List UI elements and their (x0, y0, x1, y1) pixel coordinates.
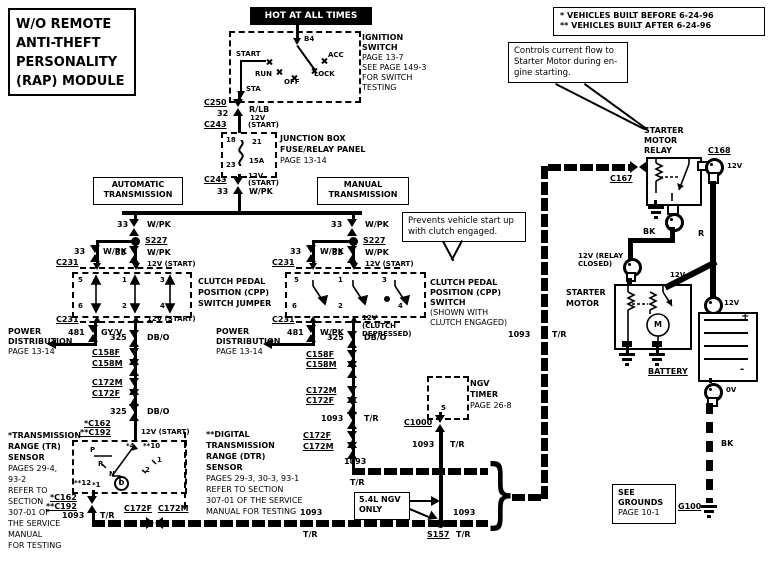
build-note-line2: ** VEHICLES BUILT AFTER 6-24-96 (560, 21, 714, 31)
contact-acc (321, 57, 328, 64)
connector-c172m: C172M (303, 443, 334, 451)
voltage-0v: 0V (726, 387, 736, 394)
circuit-1093: 1093 (62, 512, 84, 520)
color-wpk: W/PK (365, 249, 389, 257)
wire-start-drop (240, 60, 242, 91)
circuit-1093: 1093 (412, 441, 434, 449)
connector-c162: *C162 (50, 494, 77, 502)
tr-pos-1: 1 (157, 457, 162, 464)
color-tr: T/R (364, 415, 379, 423)
color-tr: T/R (450, 441, 465, 449)
pin-3: 3 (160, 277, 165, 284)
battery-label: BATTERY (648, 368, 688, 376)
dtr-note-line: REFER TO SECTION (206, 484, 303, 495)
ngv-timer-note: NGV TIMER PAGE 26-8 (470, 378, 512, 411)
pos-off: OFF (284, 79, 300, 86)
color-rlb: R/LB (249, 106, 269, 114)
starter-ground-stub (656, 346, 659, 353)
connector-c172f: C172F (306, 397, 334, 405)
pos-sta: STA (246, 86, 261, 93)
color-wpk: W/PK (365, 221, 389, 229)
ignition-note-line: SEE PAGE 149-3 (362, 63, 426, 73)
wire-ignition-feed (296, 25, 299, 38)
wire-to-jb (238, 116, 241, 133)
pin-3: 3 (382, 277, 387, 284)
cpp-switch-line: POSITION (CPP) (430, 288, 507, 298)
connector-face-line (80, 267, 172, 269)
splice-s227-label: S227 (145, 237, 167, 245)
color-tr: T/R (456, 531, 471, 539)
jb-note-line: JUNCTION BOX (280, 133, 365, 144)
circuit-33: 33 (117, 221, 128, 229)
jb-note: JUNCTION BOX FUSE/RELAY PANEL PAGE 13-14 (280, 133, 365, 166)
connector-c192: **C192 (46, 503, 77, 511)
dtr-bracket (184, 432, 188, 508)
wire-bus-33 (122, 211, 362, 215)
wire-mid-branch (312, 240, 352, 243)
automatic-header-box: AUTOMATIC TRANSMISSION (93, 177, 183, 205)
tr-note-line: MANUAL (8, 529, 81, 540)
cpp-jumper-note: CLUTCH PEDAL POSITION (CPP) SWITCH JUMPE… (198, 276, 271, 309)
clutch-callout-line: with clutch engaged. (408, 227, 520, 238)
ignition-note-line: IGNITION (362, 33, 426, 43)
contact-start (266, 58, 273, 65)
color-dbo: DB/O (147, 334, 169, 342)
circuit-32: 32 (217, 110, 228, 118)
circuit-33: 33 (115, 249, 126, 257)
voltage-12v-start: 12V (START) (147, 316, 196, 323)
connector-symbol (129, 246, 139, 263)
ngv-arrow-line (410, 500, 432, 502)
title-line: (RAP) MODULE (16, 72, 125, 91)
jb-note-line: FUSE/RELAY PANEL (280, 144, 365, 155)
circuit-1093: 1093 (453, 509, 475, 517)
ngv-pin-5: 5 (441, 405, 446, 412)
manual-header-box: MANUAL TRANSMISSION (317, 177, 409, 205)
tr-pin-10: **10 (143, 443, 160, 450)
starter-ground-symbol (619, 353, 635, 366)
voltage-12v: 12V (724, 300, 739, 307)
cable-bk-ground (706, 403, 713, 503)
wire-riser-1093 (541, 166, 548, 501)
fuse-symbol (235, 140, 247, 166)
starter-title: STARTER MOTOR (566, 287, 606, 309)
circuit-1093: 1093 (300, 509, 322, 517)
title-line: PERSONALITY (16, 53, 125, 72)
color-wpk: W/PK (147, 221, 171, 229)
hot-at-all-times-banner: HOT AT ALL TIMES (250, 7, 372, 25)
connector-c158m: C158M (306, 361, 337, 369)
circuit-33: 33 (331, 221, 342, 229)
color-bk: BK (721, 440, 733, 448)
jb-fuse-15a: 15A (249, 158, 264, 165)
pin-1: 1 (122, 277, 127, 284)
dtr-note-line: MANUAL FOR TESTING (206, 506, 303, 517)
power-dist-line: DISTRIBUTION (8, 337, 73, 347)
connector-c168: C168 (708, 147, 731, 155)
ignition-terminal-label: B4 (304, 36, 314, 43)
pin-2: 2 (338, 303, 343, 310)
jb-fuse-21: 21 (252, 139, 262, 146)
relay-title: STARTER MOTOR RELAY (644, 126, 684, 156)
ngv-only-line: ONLY (359, 505, 401, 515)
connector-c172f: C172F (124, 505, 152, 513)
connector-symbol (129, 359, 139, 376)
connector-symbol-inline (146, 517, 163, 529)
circuit-1093: 1093 (344, 458, 366, 466)
splice-s227-label: S227 (363, 237, 385, 245)
grounds-note-line: PAGE 10-1 (618, 508, 663, 518)
cpp-jumper-line: SWITCH JUMPER (198, 298, 271, 309)
pin-5: 5 (294, 277, 299, 284)
connector-symbol (347, 412, 357, 429)
connector-c250: C250 (204, 99, 227, 107)
color-wpk: W/PK (249, 188, 273, 196)
connector-c158f: C158F (306, 351, 334, 359)
wire-merge (512, 494, 544, 501)
ngv-only-box: 5.4L NGV ONLY (354, 492, 410, 520)
grounds-note-line: GROUNDS (618, 498, 663, 508)
dtr-note-line: TRANSMISSION (206, 440, 303, 451)
wire-bus-1093-up (352, 468, 488, 475)
power-dist-line: PAGE 13-14 (8, 347, 73, 357)
clutch-callout: Prevents vehicle start up with clutch en… (402, 212, 526, 242)
relay-closed-note: 12V (RELAY CLOSED) (578, 252, 623, 268)
connector-symbol (347, 219, 357, 236)
color-wpk: W/PK (147, 249, 171, 257)
power-dist-line: DISTRIBUTION (216, 337, 281, 347)
wire-left-branch (96, 240, 134, 243)
cpp-jumper-arrows (72, 272, 188, 314)
connector-c172f: C172F (303, 432, 331, 440)
pin-2: 2 (122, 303, 127, 310)
power-dist-note: POWER DISTRIBUTION PAGE 13-14 (216, 327, 281, 357)
circuit-33: 33 (74, 248, 85, 256)
auto-header-line: TRANSMISSION (94, 190, 182, 200)
color-dbo: DB/O (364, 334, 386, 342)
connector-symbol (129, 219, 139, 236)
tr-note-line: RANGE (TR) (8, 441, 81, 452)
relay-title-line: RELAY (644, 146, 684, 156)
power-dist-line: POWER (8, 327, 73, 337)
starter-ground-stub (626, 346, 629, 353)
connector-c231: C231 (272, 316, 295, 324)
relay-callout-line: gine starting. (514, 68, 622, 79)
color-tr: T/R (552, 331, 567, 339)
pos-lock: LOCK (314, 71, 335, 78)
connector-symbol-c250 (233, 99, 243, 116)
dtr-note-line: SENSOR (206, 462, 303, 473)
wire-start-contact (240, 60, 266, 62)
connector-c243-out: C243 (204, 176, 227, 184)
color-tr: T/R (303, 531, 318, 539)
tr-pos-2: 2 (145, 467, 150, 474)
cpp-jumper-line: POSITION (CPP) (198, 287, 271, 298)
manual-header-line: MANUAL (318, 180, 408, 190)
cpp-switch-line: CLUTCH PEDAL (430, 278, 507, 288)
relay-callout-line: Controls current flow to (514, 46, 622, 57)
title-box: W/O REMOTE ANTI-THEFT PERSONALITY (RAP) … (8, 8, 136, 96)
ngv-note-line: TIMER (470, 389, 512, 400)
starter-motor-m: M (654, 321, 662, 329)
pin-4: 4 (160, 303, 165, 310)
circuit-1093: 1093 (321, 415, 343, 423)
connector-face-line (296, 267, 400, 269)
pin-6: 6 (292, 303, 297, 310)
circuit-33: 33 (332, 249, 343, 257)
pin-5: 5 (78, 277, 83, 284)
build-note-box: * VEHICLES BUILT BEFORE 6-24-96 ** VEHIC… (553, 7, 765, 36)
pin-6: 6 (78, 303, 83, 310)
wire-to-bus (238, 194, 241, 212)
title-line: ANTI-THEFT (16, 34, 125, 53)
tr-note-line: *TRANSMISSION (8, 430, 81, 441)
tr-pin-1: *1 (92, 482, 101, 489)
ground-g100-label: G100 (678, 503, 701, 511)
manual-header-line: TRANSMISSION (318, 190, 408, 200)
callout-pointer-line (451, 240, 463, 260)
connector-symbol (88, 325, 98, 342)
dtr-note-line: PAGES 29-3, 30-3, 93-1 (206, 473, 303, 484)
relay-closed-line: 12V (RELAY (578, 252, 623, 260)
build-note-line1: * VEHICLES BUILT BEFORE 6-24-96 (560, 11, 714, 21)
circuit-325: 325 (110, 408, 127, 416)
cpp-switch-note: CLUTCH PEDAL POSITION (CPP) SWITCH (SHOW… (430, 278, 507, 328)
ignition-note-line: FOR SWITCH (362, 73, 426, 83)
connector-symbol (306, 245, 316, 262)
wire-riser-top (548, 164, 632, 171)
ignition-note: IGNITION SWITCH PAGE 13-7 SEE PAGE 149-3… (362, 33, 426, 93)
starter-internals (614, 284, 688, 346)
cpp-jumper-line: CLUTCH PEDAL (198, 276, 271, 287)
connector-symbol (347, 361, 357, 378)
connector-c162: *C162 (84, 420, 111, 428)
pin-1: 1 (338, 277, 343, 284)
tr-note-line: 93-2 (8, 474, 81, 485)
tr-note-line: SENSOR (8, 452, 81, 463)
cpp-switch-line: (SHOWN WITH (430, 308, 507, 318)
dtr-note-line: **DIGITAL (206, 429, 303, 440)
connector-c158f: C158F (92, 349, 120, 357)
tr-note-line: FOR TESTING (8, 540, 81, 551)
tr-pos-p: P (90, 447, 95, 454)
connector-symbol (347, 331, 357, 348)
cable-bk (628, 240, 633, 259)
connector-symbol (347, 246, 357, 263)
connector-c231: C231 (56, 316, 79, 324)
tr-note: *TRANSMISSION RANGE (TR) SENSOR PAGES 29… (8, 430, 81, 551)
tr-pos-r: R (98, 461, 103, 468)
power-dist-line: PAGE 13-14 (216, 347, 281, 357)
connector-symbol (306, 325, 316, 342)
color-bk: BK (643, 228, 655, 236)
cable-r (710, 181, 716, 297)
tr-note-line: PAGES 29-4, (8, 463, 81, 474)
connector-symbol (129, 404, 139, 421)
color-tr: T/R (100, 512, 115, 520)
circuit-325: 325 (110, 334, 127, 342)
jb-note-line: PAGE 13-14 (280, 155, 365, 166)
grounds-note-line: SEE (618, 488, 663, 498)
ngv-only-line: 5.4L NGV (359, 495, 401, 505)
voltage-start: (START) (248, 180, 279, 187)
battery-plates-mask (712, 325, 740, 371)
ngv-note-line: NGV (470, 378, 512, 389)
contact-run (276, 68, 283, 75)
relay-callout-line: Starter Motor during en- (514, 57, 622, 68)
dtr-note-line: 307-01 OF THE SERVICE (206, 495, 303, 506)
connector-c167: C167 (610, 175, 633, 183)
see-grounds-box: SEE GROUNDS PAGE 10-1 (612, 484, 676, 524)
connector-c172f: C172F (92, 390, 120, 398)
cpp-switch-line: SWITCH (430, 298, 507, 308)
tr-pos-n: N (109, 471, 115, 478)
auto-header-line: AUTOMATIC (94, 180, 182, 190)
tr-pin-4: *4 (126, 443, 135, 450)
circuit-325: 325 (327, 334, 344, 342)
connector-symbol (435, 415, 445, 432)
clutch-depressed-line: 12V (362, 314, 411, 322)
relay-title-line: MOTOR (644, 136, 684, 146)
ngv-timer-box (427, 376, 469, 420)
starter-title-line: STARTER (566, 287, 606, 298)
relay-closed-line: CLOSED) (578, 260, 623, 268)
pos-run: RUN (255, 71, 272, 78)
color-r: R (698, 230, 704, 238)
clutch-depressed-line: (CLUTCH (362, 322, 411, 330)
connector-c158m: C158M (92, 360, 123, 368)
title-line: W/O REMOTE (16, 15, 125, 34)
callout-pointer-line (555, 83, 645, 130)
color-tr: T/R (350, 479, 365, 487)
wire-ngv-1093 (439, 432, 443, 521)
cable-bk (628, 238, 675, 243)
ngv-arrow (431, 496, 440, 506)
connector-c172m: C172M (306, 387, 337, 395)
color-dbo: DB/O (147, 408, 169, 416)
connector-symbol (129, 330, 139, 347)
starter-title-line: MOTOR (566, 298, 606, 309)
connector-c192: **C192 (80, 429, 111, 437)
voltage-12v-start: 12V (START) (141, 429, 190, 436)
circuit-33: 33 (217, 188, 228, 196)
ignition-note-line: SWITCH (362, 43, 426, 53)
ground-g100-symbol (701, 505, 717, 518)
pin-4: 4 (398, 303, 403, 310)
connector-c231: C231 (272, 259, 295, 267)
relay-callout: Controls current flow to Starter Motor d… (508, 42, 628, 83)
splice-s157-label: S157 (427, 531, 449, 539)
ignition-feed-arrow (293, 38, 301, 45)
pos-acc: ACC (328, 52, 344, 59)
ignition-note-line: PAGE 13-7 (362, 53, 426, 63)
connector-c231: C231 (56, 259, 79, 267)
circuit-33: 33 (290, 248, 301, 256)
connector-symbol (90, 245, 100, 262)
wiring-diagram-canvas: W/O REMOTE ANTI-THEFT PERSONALITY (RAP) … (0, 0, 768, 562)
pos-start: START (236, 51, 261, 58)
connector-c1000: C1000 (404, 419, 432, 427)
callout-pointer-line (584, 83, 648, 130)
voltage-12v: 12V (727, 163, 742, 170)
power-dist-note: POWER DISTRIBUTION PAGE 13-14 (8, 327, 73, 357)
relay-ground-symbol (648, 206, 664, 219)
connector-symbol-c167 (630, 161, 647, 173)
clutch-callout-line: Prevents vehicle start up (408, 216, 520, 227)
connector-symbol-c243 (233, 177, 243, 194)
relay-title-line: STARTER (644, 126, 684, 136)
connector-symbol (87, 496, 97, 513)
ignition-note-line: TESTING (362, 83, 426, 93)
battery-plus: + (741, 312, 749, 322)
power-dist-line: POWER (216, 327, 281, 337)
circuit-1093: 1093 (508, 331, 530, 339)
dtr-note-line: RANGE (DTR) (206, 451, 303, 462)
dtr-note: **DIGITAL TRANSMISSION RANGE (DTR) SENSO… (206, 429, 303, 517)
cpp-switch-line: CLUTCH ENGAGED) (430, 318, 507, 328)
connector-c172m: C172M (92, 379, 123, 387)
circuit-481: 481 (287, 329, 304, 337)
relay-internals (646, 157, 698, 202)
voltage-start: (START) (248, 122, 279, 129)
tr-pos-d: D (114, 476, 129, 491)
battery-minus: - (740, 365, 744, 375)
connector-c243-in: C243 (204, 121, 227, 129)
starter-ground-symbol (649, 353, 665, 366)
ngv-note-line: PAGE 26-8 (470, 400, 512, 411)
